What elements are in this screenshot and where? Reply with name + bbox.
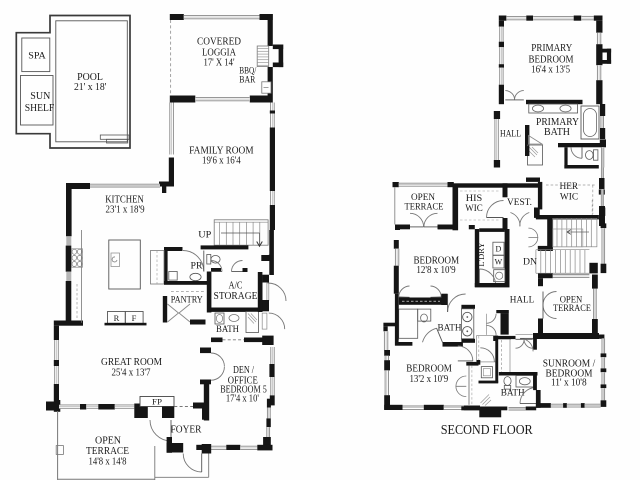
svg-text:23'1 x 18'9: 23'1 x 18'9 (106, 205, 145, 216)
svg-text:TERRACE: TERRACE (86, 446, 129, 457)
svg-text:HALL: HALL (500, 130, 521, 140)
svg-text:FOYER: FOYER (171, 425, 202, 436)
svg-text:SUN: SUN (30, 91, 50, 102)
svg-text:WIC: WIC (560, 192, 578, 202)
svg-text:PR: PR (191, 261, 203, 271)
svg-text:UP: UP (198, 231, 211, 241)
svg-text:R: R (114, 313, 120, 323)
svg-text:BAR: BAR (239, 76, 256, 86)
svg-text:14'8 x 14'8: 14'8 x 14'8 (89, 457, 127, 468)
svg-text:SECOND FLOOR: SECOND FLOOR (441, 422, 533, 437)
svg-text:D: D (496, 245, 502, 254)
svg-text:GREAT ROOM: GREAT ROOM (101, 357, 163, 368)
svg-text:17' X 14': 17' X 14' (204, 58, 235, 69)
svg-text:DN: DN (523, 258, 537, 268)
svg-text:A/C: A/C (229, 281, 243, 292)
svg-text:TERRACE: TERRACE (553, 304, 591, 314)
svg-text:13'2 x 10'9: 13'2 x 10'9 (409, 374, 448, 385)
svg-text:FP: FP (152, 398, 163, 407)
svg-text:HIS: HIS (466, 194, 483, 204)
svg-text:TERRACE: TERRACE (405, 202, 444, 212)
svg-text:W: W (495, 258, 503, 267)
svg-text:F: F (132, 313, 137, 323)
svg-text:PANTRY: PANTRY (171, 296, 203, 306)
svg-text:21' x 18': 21' x 18' (74, 82, 107, 93)
svg-text:WIC: WIC (465, 204, 483, 214)
svg-text:HALL: HALL (510, 296, 535, 306)
svg-text:PRIMARY: PRIMARY (531, 43, 572, 54)
svg-text:11' x 10'8: 11' x 10'8 (551, 377, 587, 388)
svg-text:12'8 x 10'9: 12'8 x 10'9 (416, 265, 455, 276)
svg-text:COVERED: COVERED (197, 37, 241, 48)
svg-text:16'4 x 13'5: 16'4 x 13'5 (531, 65, 570, 76)
svg-text:OPEN: OPEN (95, 436, 121, 447)
svg-text:VEST.: VEST. (507, 198, 532, 208)
svg-text:SHELF: SHELF (25, 103, 55, 114)
svg-text:BATH: BATH (544, 127, 570, 138)
svg-text:17'4 x 10': 17'4 x 10' (226, 394, 259, 405)
svg-text:L'DRY: L'DRY (476, 242, 486, 266)
svg-text:25'4 x 13'7: 25'4 x 13'7 (112, 368, 151, 379)
svg-text:DEN /: DEN / (233, 365, 254, 376)
svg-text:SPA: SPA (28, 51, 46, 61)
svg-text:BEDROOM: BEDROOM (406, 363, 452, 374)
svg-text:STORAGE: STORAGE (214, 291, 258, 302)
svg-text:BATH: BATH (438, 324, 462, 334)
svg-text:HER: HER (559, 182, 578, 192)
svg-text:BATH: BATH (216, 325, 239, 335)
svg-text:19'6 x 16'4: 19'6 x 16'4 (202, 155, 241, 166)
